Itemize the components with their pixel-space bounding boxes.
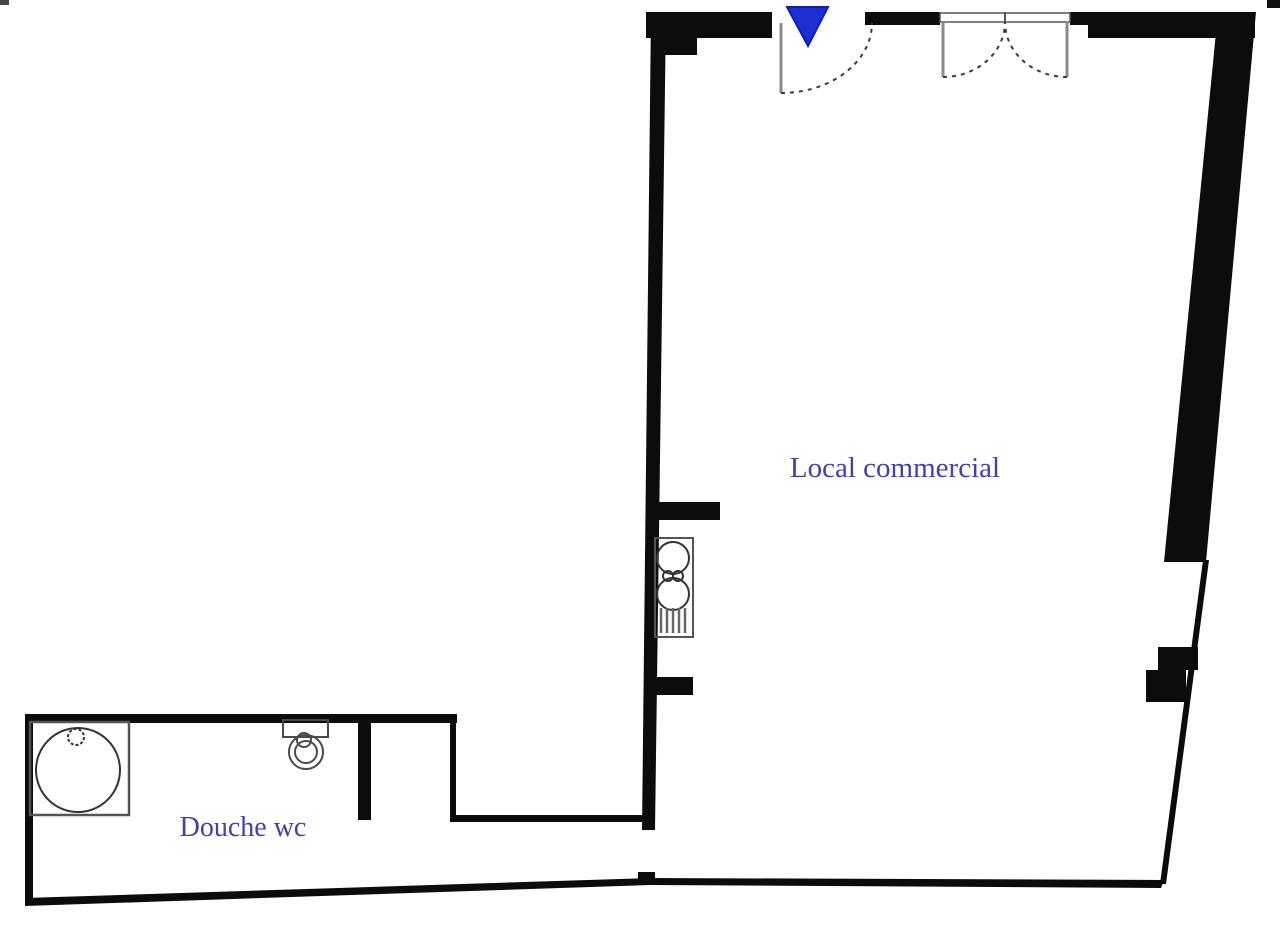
main-room-label: Local commercial (745, 452, 1045, 485)
kitchenette-basin-top (657, 542, 689, 574)
toilet-bowl-inner (295, 741, 317, 763)
entrance-arrow-icon (787, 7, 828, 46)
floor-plan-page: Local commercial Douche wc (0, 0, 1280, 936)
top-wall-segment-c-thin (1070, 12, 1088, 25)
floor-plan-drawing (0, 0, 1280, 936)
entrance-door-swing-arc (781, 23, 872, 93)
toilet (283, 720, 328, 769)
bathroom-label: Douche wc (143, 812, 343, 844)
kitchenette-basin-bottom (657, 578, 689, 610)
bottom-wall-tick (638, 872, 655, 882)
kitchenette-stub-top (651, 502, 720, 520)
shower-basin-circle (36, 728, 120, 812)
walls (25, 12, 1256, 906)
kitchenette-drainer-hatch (661, 608, 685, 633)
double-door-right-swing-arc (1005, 22, 1067, 77)
right-wall-pillar-upper (1158, 647, 1198, 670)
bathroom-partition-stub (358, 722, 371, 820)
shower-tray (30, 722, 129, 815)
shower-tray-outline (30, 722, 129, 815)
page-corner-mark-left (0, 0, 9, 5)
top-wall-segment-b (865, 12, 940, 25)
kitchenette-stub-bottom (653, 677, 693, 695)
right-wall-thin-slant (1160, 560, 1209, 884)
main-room-left-wall (642, 12, 666, 830)
right-wall-thick-slant (1164, 12, 1256, 562)
shower-drain-circle (68, 729, 84, 745)
corridor-wall-vertical (450, 722, 456, 821)
bottom-wall-right (650, 878, 1164, 888)
page-corner-mark-right (1267, 0, 1280, 8)
double-door (940, 12, 1070, 77)
corridor-wall-horizontal (450, 815, 652, 822)
right-wall-pillar-lower (1146, 670, 1186, 702)
bottom-wall-left (25, 878, 650, 906)
double-door-left-swing-arc (943, 22, 1005, 77)
entrance-door (781, 23, 872, 93)
kitchenette-sink (655, 538, 693, 637)
